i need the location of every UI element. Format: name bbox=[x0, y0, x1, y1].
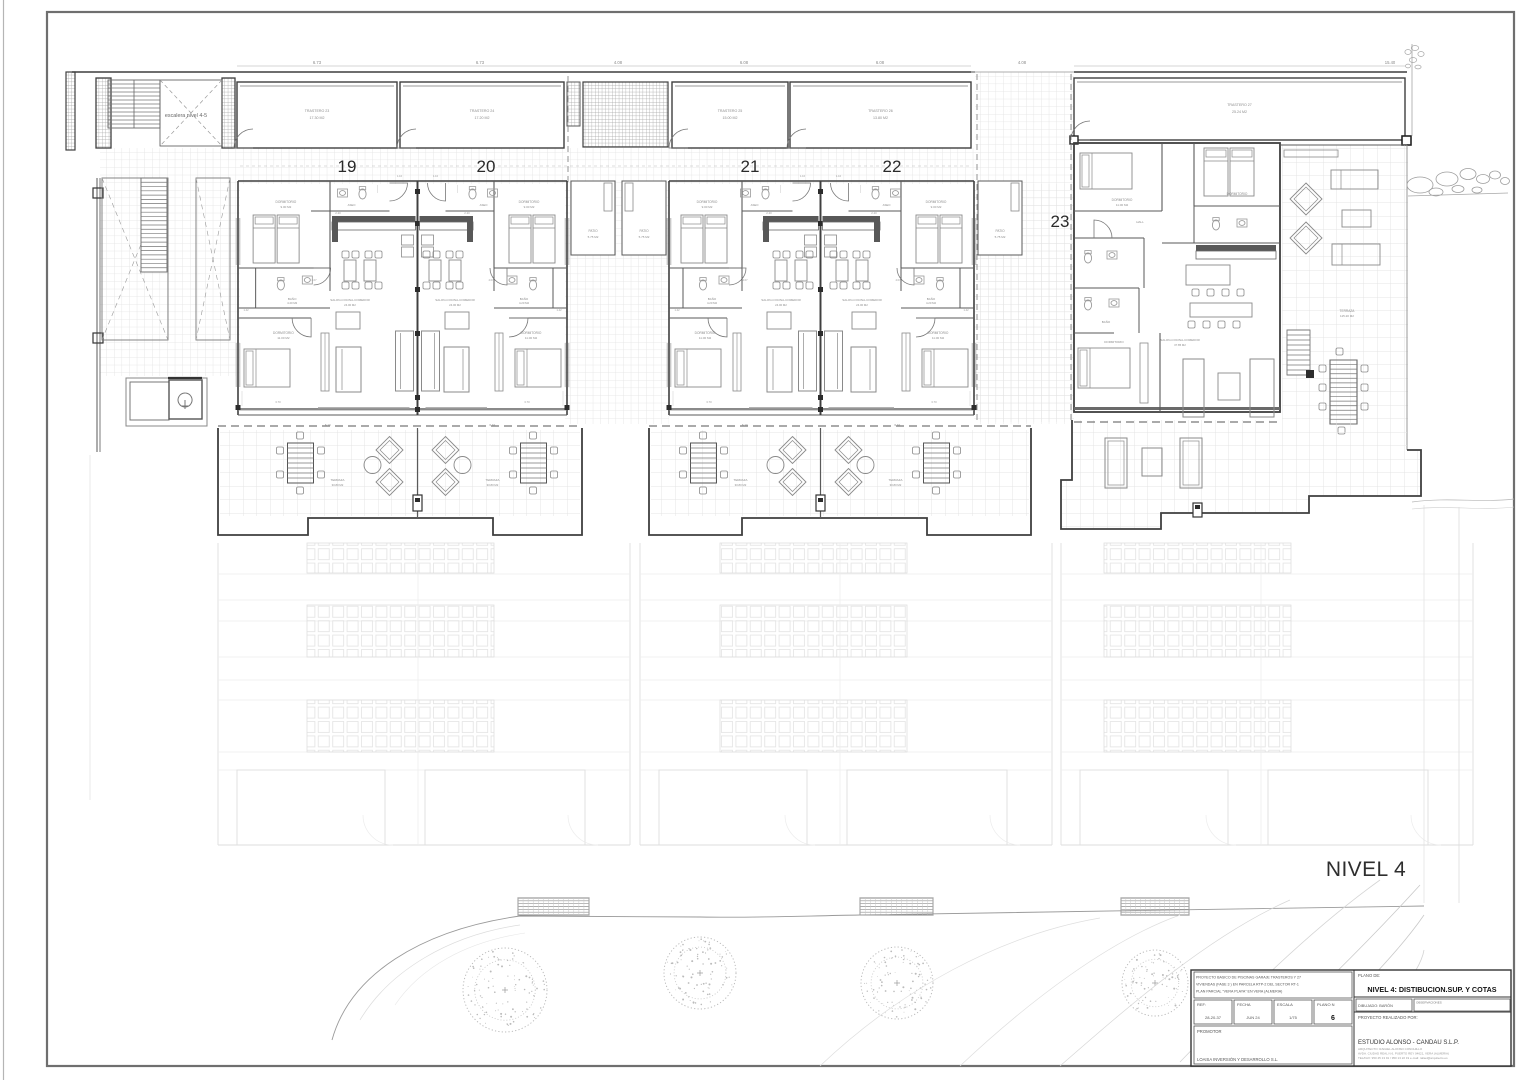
svg-text:24.00 M2: 24.00 M2 bbox=[344, 303, 356, 307]
svg-text:30.80 M2: 30.80 M2 bbox=[735, 483, 747, 487]
svg-text:DORMITORIO: DORMITORIO bbox=[521, 331, 542, 335]
svg-text:TRASTERO 26: TRASTERO 26 bbox=[868, 109, 893, 113]
svg-text:FECHA: FECHA bbox=[1237, 1002, 1251, 1007]
svg-text:23: 23 bbox=[1051, 212, 1070, 231]
svg-text:11.00 M2: 11.00 M2 bbox=[699, 336, 712, 340]
svg-text:19: 19 bbox=[338, 157, 357, 176]
svg-text:PROYECTO REALIZADO POR:: PROYECTO REALIZADO POR: bbox=[1358, 1015, 1418, 1020]
svg-text:11.00 M2: 11.00 M2 bbox=[277, 336, 290, 340]
svg-text:TRASTERO 23: TRASTERO 23 bbox=[305, 109, 330, 113]
svg-text:4.08: 4.08 bbox=[614, 60, 623, 65]
svg-text:5.75 M2: 5.75 M2 bbox=[639, 235, 650, 239]
svg-text:OBSERVACIONES: OBSERVACIONES bbox=[1416, 1001, 1442, 1005]
svg-text:9.00 M2: 9.00 M2 bbox=[280, 205, 291, 209]
svg-text:30.80 M2: 30.80 M2 bbox=[890, 483, 902, 487]
svg-text:3.70: 3.70 bbox=[524, 400, 530, 404]
svg-text:VIVIENDAS (FASE 3 ) EN PARCELA: VIVIENDAS (FASE 3 ) EN PARCELA RTP-2 DEL… bbox=[1196, 983, 1299, 987]
svg-text:11.00 M2: 11.00 M2 bbox=[525, 336, 538, 340]
svg-text:4.20 M2: 4.20 M2 bbox=[287, 301, 298, 305]
svg-text:1.10: 1.10 bbox=[397, 174, 403, 178]
svg-text:TEL/FAX: 950 45 13 91 / 950 13: TEL/FAX: 950 45 13 91 / 950 13 22 19 e-m… bbox=[1358, 1056, 1448, 1060]
svg-text:ESCALA: ESCALA bbox=[1277, 1002, 1293, 1007]
svg-text:ASEO: ASEO bbox=[348, 203, 357, 207]
svg-text:TRASTERO 25: TRASTERO 25 bbox=[718, 109, 743, 113]
svg-text:NIVEL 4: NIVEL 4 bbox=[1326, 858, 1406, 881]
svg-text:1.10: 1.10 bbox=[836, 174, 842, 178]
svg-text:ESTUDIO ALONSO - CANDAU S.L.P.: ESTUDIO ALONSO - CANDAU S.L.P. bbox=[1358, 1040, 1459, 1046]
svg-text:DORMITORIO: DORMITORIO bbox=[695, 331, 716, 335]
svg-text:115.20 M2: 115.20 M2 bbox=[1340, 314, 1354, 318]
svg-text:3.70: 3.70 bbox=[931, 400, 937, 404]
svg-text:SALON-COCINA-COMEDOR: SALON-COCINA-COMEDOR bbox=[761, 298, 801, 302]
svg-text:ARQUITECTO: RAFAEL ALONSO CONC: ARQUITECTO: RAFAEL ALONSO CONCHILLO bbox=[1358, 1047, 1423, 1051]
svg-text:TERRAZA: TERRAZA bbox=[888, 478, 902, 482]
svg-text:11.00 M2: 11.00 M2 bbox=[1116, 203, 1129, 207]
svg-text:4.07: 4.07 bbox=[742, 278, 748, 282]
svg-text:1.42: 1.42 bbox=[556, 308, 562, 312]
svg-text:SALON-COCINA-COMEDOR: SALON-COCINA-COMEDOR bbox=[435, 298, 475, 302]
svg-text:PATIO: PATIO bbox=[588, 229, 598, 233]
svg-text:ASEO: ASEO bbox=[751, 203, 760, 207]
svg-text:20: 20 bbox=[477, 157, 496, 176]
svg-text:15.40: 15.40 bbox=[1385, 60, 1396, 65]
svg-text:2.20: 2.20 bbox=[464, 211, 470, 215]
svg-text:21: 21 bbox=[741, 157, 760, 176]
svg-text:PROYECTO BASICO DE PISCINAS GA: PROYECTO BASICO DE PISCINAS GARAJE TRAST… bbox=[1196, 976, 1301, 980]
svg-text:1.10: 1.10 bbox=[433, 174, 439, 178]
svg-text:22: 22 bbox=[883, 157, 902, 176]
svg-text:SALON-COCINA-COMEDOR: SALON-COCINA-COMEDOR bbox=[330, 298, 370, 302]
svg-text:28-20-37: 28-20-37 bbox=[1205, 1015, 1222, 1020]
svg-text:ASEO: ASEO bbox=[883, 203, 892, 207]
svg-text:4.08: 4.08 bbox=[1018, 60, 1027, 65]
svg-text:6: 6 bbox=[1331, 1015, 1335, 1022]
svg-text:6.73: 6.73 bbox=[313, 60, 322, 65]
svg-text:6.73: 6.73 bbox=[476, 60, 485, 65]
svg-text:PLANO DE:: PLANO DE: bbox=[1358, 973, 1380, 978]
svg-text:30.80 M2: 30.80 M2 bbox=[487, 483, 499, 487]
svg-text:TERRAZA: TERRAZA bbox=[733, 478, 747, 482]
svg-text:DORMITORIO: DORMITORIO bbox=[519, 200, 540, 204]
svg-text:REF:: REF: bbox=[1197, 1002, 1206, 1007]
svg-text:DORMITORIO: DORMITORIO bbox=[1227, 192, 1248, 196]
svg-text:4.20 M2: 4.20 M2 bbox=[926, 301, 937, 305]
svg-text:1.42: 1.42 bbox=[963, 308, 969, 312]
svg-text:3.70: 3.70 bbox=[275, 400, 281, 404]
svg-text:PLAN PARCIAL "VERA PLAYA" EN: PLAN PARCIAL "VERA PLAYA" EN VERA (ALMER… bbox=[1196, 990, 1282, 994]
svg-text:DORMITORIO: DORMITORIO bbox=[697, 200, 718, 204]
svg-text:TRASTERO 24: TRASTERO 24 bbox=[470, 109, 495, 113]
svg-text:5.75 M2: 5.75 M2 bbox=[588, 235, 599, 239]
svg-text:9.00 M2: 9.00 M2 bbox=[702, 205, 713, 209]
svg-text:2.20: 2.20 bbox=[335, 211, 341, 215]
svg-text:SALON-COCINA-COMEDOR: SALON-COCINA-COMEDOR bbox=[842, 298, 882, 302]
svg-text:25.24 M2: 25.24 M2 bbox=[1232, 110, 1247, 114]
svg-text:5.75 M2: 5.75 M2 bbox=[995, 235, 1006, 239]
svg-text:LOAISA INVERSIÓN Y DESARROLLO: LOAISA INVERSIÓN Y DESARROLLO S.L. bbox=[1197, 1057, 1278, 1062]
svg-text:17.20 M2: 17.20 M2 bbox=[475, 116, 490, 120]
svg-text:1.42: 1.42 bbox=[243, 308, 249, 312]
svg-text:BAÑO: BAÑO bbox=[1102, 319, 1111, 324]
svg-text:4.07: 4.07 bbox=[488, 278, 494, 282]
svg-text:4.20 M2: 4.20 M2 bbox=[519, 301, 530, 305]
svg-text:15.00 M2: 15.00 M2 bbox=[723, 116, 738, 120]
svg-text:NIVEL 4: DISTIBUCION.SUP. Y CO: NIVEL 4: DISTIBUCION.SUP. Y COTAS bbox=[1367, 985, 1496, 994]
svg-text:6.08: 6.08 bbox=[876, 60, 885, 65]
svg-text:11.00 M2: 11.00 M2 bbox=[932, 336, 945, 340]
svg-text:PATIO: PATIO bbox=[995, 229, 1005, 233]
svg-text:PLANO N: PLANO N bbox=[1317, 1002, 1335, 1007]
svg-text:PATIO: PATIO bbox=[639, 229, 649, 233]
svg-text:24.00 M2: 24.00 M2 bbox=[775, 303, 787, 307]
svg-text:2.20: 2.20 bbox=[766, 211, 772, 215]
svg-text:4.07: 4.07 bbox=[895, 278, 901, 282]
svg-text:DORMITORIO: DORMITORIO bbox=[1104, 340, 1124, 344]
svg-text:HALL: HALL bbox=[1136, 220, 1144, 224]
svg-text:PROMOTOR: PROMOTOR bbox=[1197, 1029, 1222, 1034]
svg-text:1/75: 1/75 bbox=[1289, 1015, 1298, 1020]
svg-text:9.00 M2: 9.00 M2 bbox=[524, 205, 535, 209]
svg-text:4.20 M2: 4.20 M2 bbox=[707, 301, 718, 305]
svg-text:DIBUJADO: BARÓN: DIBUJADO: BARÓN bbox=[1358, 1003, 1393, 1008]
svg-text:3.70: 3.70 bbox=[706, 400, 712, 404]
svg-text:TERRAZA: TERRAZA bbox=[330, 478, 344, 482]
svg-text:2.20: 2.20 bbox=[871, 211, 877, 215]
svg-text:DORMITORIO: DORMITORIO bbox=[928, 331, 949, 335]
svg-text:DORMITORIO: DORMITORIO bbox=[276, 200, 297, 204]
svg-text:1.10: 1.10 bbox=[800, 174, 806, 178]
svg-text:9.00 M2: 9.00 M2 bbox=[931, 205, 942, 209]
svg-text:24.00 M2: 24.00 M2 bbox=[856, 303, 868, 307]
svg-text:30.80 M2: 30.80 M2 bbox=[332, 483, 344, 487]
svg-text:DORMITORIO: DORMITORIO bbox=[926, 200, 947, 204]
svg-text:DORMITORIO: DORMITORIO bbox=[1112, 198, 1133, 202]
svg-text:37.85 M2: 37.85 M2 bbox=[1174, 343, 1186, 347]
svg-text:6.08: 6.08 bbox=[740, 60, 749, 65]
svg-text:TERRAZA: TERRAZA bbox=[485, 478, 499, 482]
svg-text:1.42: 1.42 bbox=[674, 308, 680, 312]
svg-text:24.00 M2: 24.00 M2 bbox=[449, 303, 461, 307]
svg-text:TERRAZA: TERRAZA bbox=[1340, 309, 1356, 313]
svg-text:17.30 M2: 17.30 M2 bbox=[310, 116, 325, 120]
svg-text:13.80 M2: 13.80 M2 bbox=[873, 116, 888, 120]
svg-text:TRASTERO 27: TRASTERO 27 bbox=[1227, 103, 1252, 107]
svg-text:ASEO: ASEO bbox=[480, 203, 489, 207]
svg-text:4.07: 4.07 bbox=[311, 278, 317, 282]
svg-text:escalera nivel 4-5: escalera nivel 4-5 bbox=[165, 113, 207, 119]
svg-text:SALON-COCINA-COMEDOR: SALON-COCINA-COMEDOR bbox=[1160, 338, 1200, 342]
svg-text:DORMITORIO: DORMITORIO bbox=[273, 331, 294, 335]
svg-text:AVDA. CIUDAD REAL N 6, PUERTO: AVDA. CIUDAD REAL N 6, PUERTO REY 04621,… bbox=[1358, 1052, 1449, 1056]
svg-text:JUN 24: JUN 24 bbox=[1246, 1015, 1260, 1020]
